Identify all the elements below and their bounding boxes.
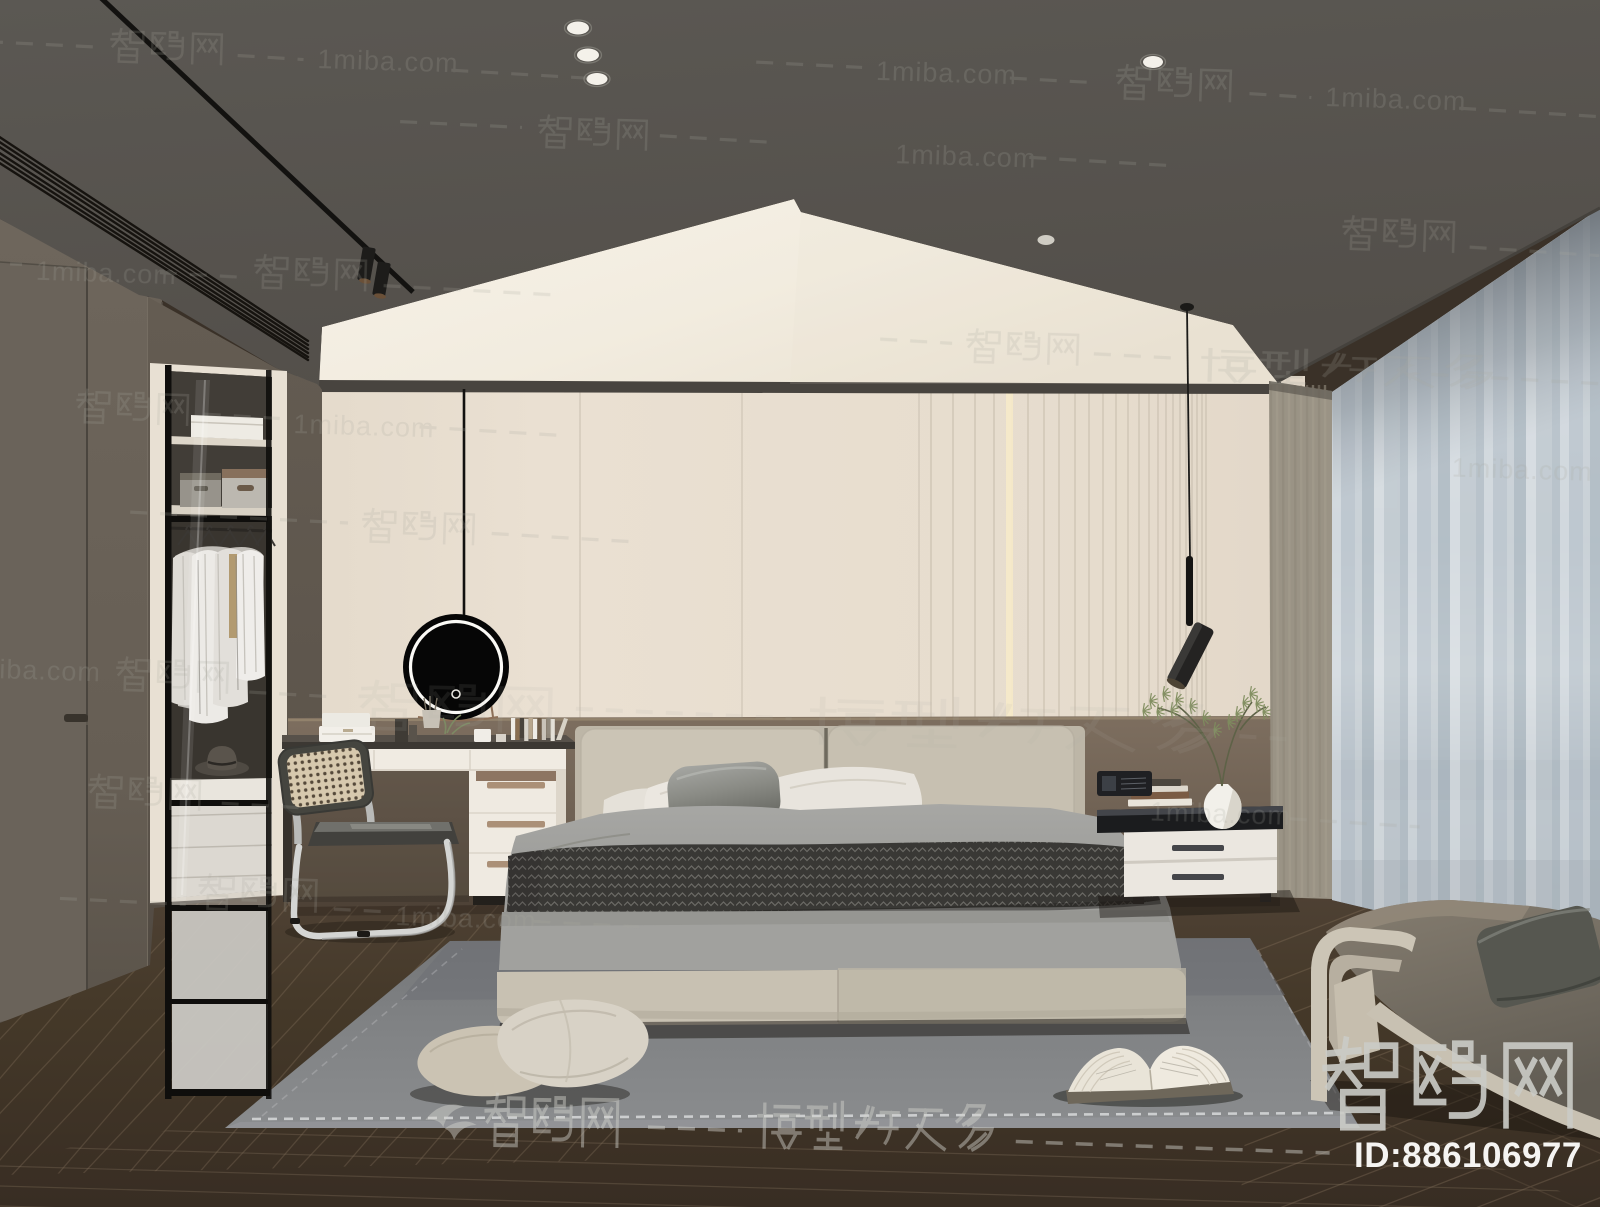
svg-text:1miba.com: 1miba.com (895, 139, 1037, 173)
svg-text:1miba.com: 1miba.com (317, 44, 459, 78)
svg-text:1miba.com: 1miba.com (0, 653, 101, 687)
svg-text:ID:886106977: ID:886106977 (1354, 1136, 1582, 1175)
svg-text:1miba.com: 1miba.com (1451, 452, 1593, 486)
svg-text:1miba.com: 1miba.com (35, 256, 177, 290)
svg-text:1miba.com: 1miba.com (1150, 796, 1292, 830)
svg-text:1miba.com: 1miba.com (395, 901, 537, 935)
svg-text:1miba.com: 1miba.com (875, 56, 1017, 90)
svg-text:1miba.com: 1miba.com (1325, 82, 1467, 116)
svg-text:1miba.com: 1miba.com (293, 409, 435, 443)
